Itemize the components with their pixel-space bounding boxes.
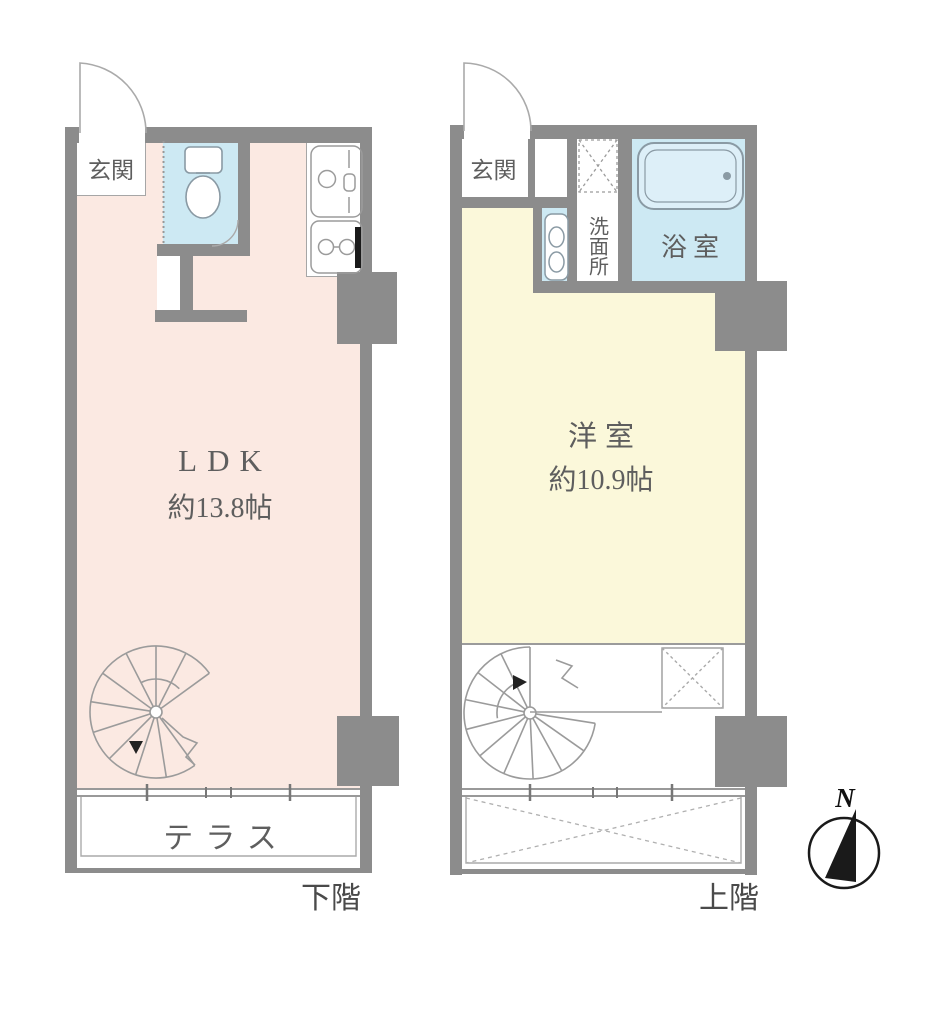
wall-segment	[155, 310, 247, 322]
wall-segment	[567, 137, 577, 293]
toilet-room-upper	[542, 208, 567, 281]
pillar	[337, 272, 397, 344]
floor-label-upper: 上階	[684, 878, 774, 912]
wall-segment	[180, 256, 193, 312]
room-label-western: 洋室	[491, 414, 711, 454]
toilet-room-lower	[163, 141, 238, 244]
wall-segment	[65, 127, 77, 872]
balcony-cross	[466, 798, 741, 863]
pillar	[715, 281, 787, 351]
wall-segment	[450, 125, 462, 875]
bathroom-label: 浴室	[640, 229, 740, 261]
room-size-ldk: 約13.8帖	[110, 489, 330, 523]
terrace-label: テラス	[100, 817, 340, 853]
floor-label-lower: 下階	[286, 878, 376, 912]
wall-segment	[618, 137, 632, 293]
room-boundary-line	[462, 643, 745, 645]
shoe-closet	[535, 137, 567, 197]
washroom-label: 洗面所	[584, 194, 610, 298]
entrance-label-upper: 玄関	[457, 137, 530, 199]
wall-segment	[157, 244, 250, 256]
closet-alcove	[157, 256, 180, 310]
floor-plan-page: 玄関 LDK 約13.8帖 テラス 下階 玄関 洋室 約10.9帖 洗面所 浴室…	[0, 0, 925, 1024]
compass-north-label: N	[831, 784, 859, 812]
kitchen-counter	[306, 141, 362, 277]
balcony-border	[466, 797, 741, 863]
wall-segment	[533, 197, 542, 293]
stair-hall	[462, 645, 745, 788]
room-size-western: 約10.9帖	[491, 461, 711, 495]
entrance-label-lower: 玄関	[76, 139, 146, 196]
pillar	[715, 716, 787, 787]
compass-icon	[809, 809, 879, 888]
pillar	[337, 716, 399, 786]
room-label-ldk: LDK	[110, 441, 330, 481]
wall-segment	[238, 127, 250, 256]
